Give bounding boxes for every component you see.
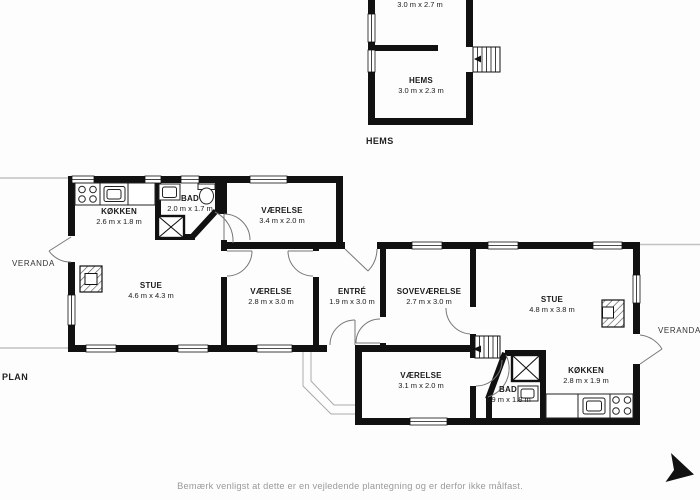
room-label-hems-bottom: HEMS 3.0 m x 2.3 m <box>398 76 443 95</box>
disclaimer-text: Bemærk venligst at dette er en vejledend… <box>0 481 700 491</box>
room-label-kokken-right: KØKKEN 2.8 m x 1.9 m <box>563 366 608 385</box>
sink-icon-right <box>583 398 605 414</box>
room-label-hems-top: HEMS 3.0 m x 2.7 m <box>397 0 442 9</box>
room-label-kokken-left: KØKKEN 2.6 m x 1.8 m <box>96 207 141 226</box>
door-gaps <box>68 47 641 386</box>
room-label-stue-left: STUE 4.6 m x 4.3 m <box>128 281 173 300</box>
room-label-vaerelse-mid: VÆRELSE 2.8 m x 3.0 m <box>248 287 293 306</box>
room-label-bad-top: BAD 2.0 m x 1.7 m <box>167 194 212 213</box>
stairs-icon-main <box>473 336 500 358</box>
section-label-hems: HEMS <box>366 136 394 146</box>
room-label-stue-right: STUE 4.8 m x 3.8 m <box>529 295 574 314</box>
floorplan-drawing <box>0 0 700 500</box>
shower-icon <box>158 216 184 238</box>
floorplan-canvas: HEMS 3.0 m x 2.7 m HEMS 3.0 m x 2.3 m KØ… <box>0 0 700 500</box>
stairs-icon <box>473 47 500 72</box>
windows <box>68 14 640 425</box>
room-label-entre: ENTRÉ 1.9 m x 3.0 m <box>329 287 374 306</box>
section-label-plan: PLAN <box>2 372 28 382</box>
room-label-vaerelse-top: VÆRELSE 3.4 m x 2.0 m <box>259 206 304 225</box>
deck-outline <box>303 352 359 414</box>
veranda-label-right: VERANDA <box>658 326 700 335</box>
veranda-label-left: VERANDA <box>12 259 55 268</box>
walls <box>68 0 640 425</box>
fireplace-icon <box>80 266 102 292</box>
room-label-sovevaerelse: SOVEVÆRELSE 2.7 m x 3.0 m <box>397 287 461 306</box>
sink-icon <box>104 187 125 202</box>
fireplace-icon-right <box>602 300 624 327</box>
direction-arrow-icon <box>666 453 695 482</box>
shower-icon-bottom <box>512 355 540 381</box>
room-label-bad-bottom: BAD 1.9 m x 1.8 m <box>485 385 530 404</box>
room-label-vaerelse-bottom: VÆRELSE 3.1 m x 2.0 m <box>398 371 443 390</box>
